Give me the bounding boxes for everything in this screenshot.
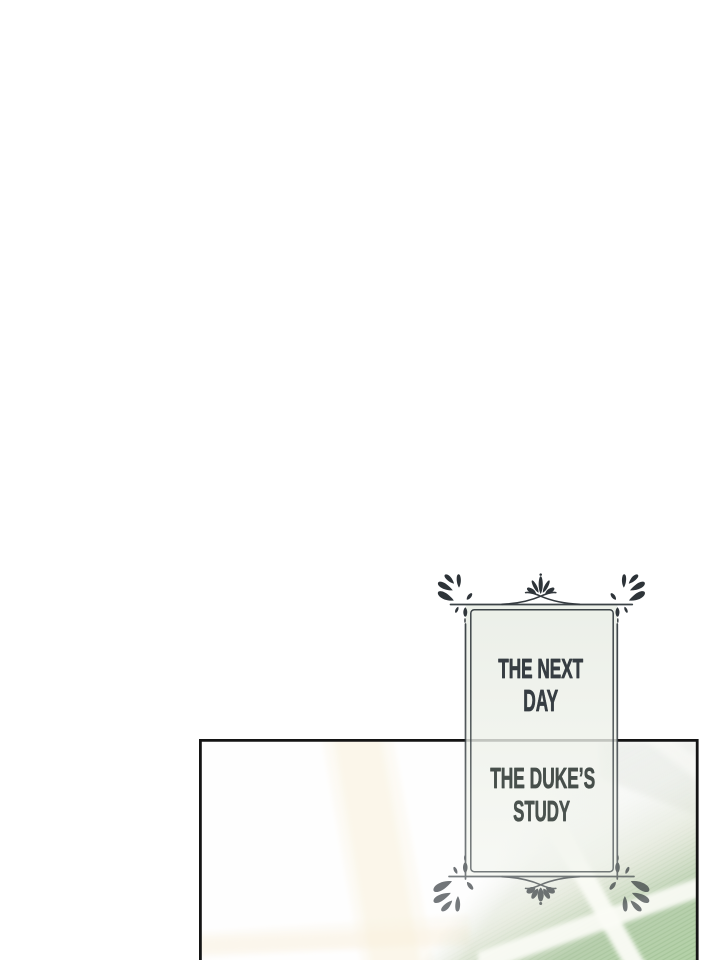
svg-text:THE NEXT: THE NEXT (498, 653, 583, 684)
svg-text:THE DUKE’S: THE DUKE’S (490, 763, 595, 795)
svg-text:STUDY: STUDY (513, 796, 570, 828)
svg-text:DAY: DAY (523, 683, 558, 718)
